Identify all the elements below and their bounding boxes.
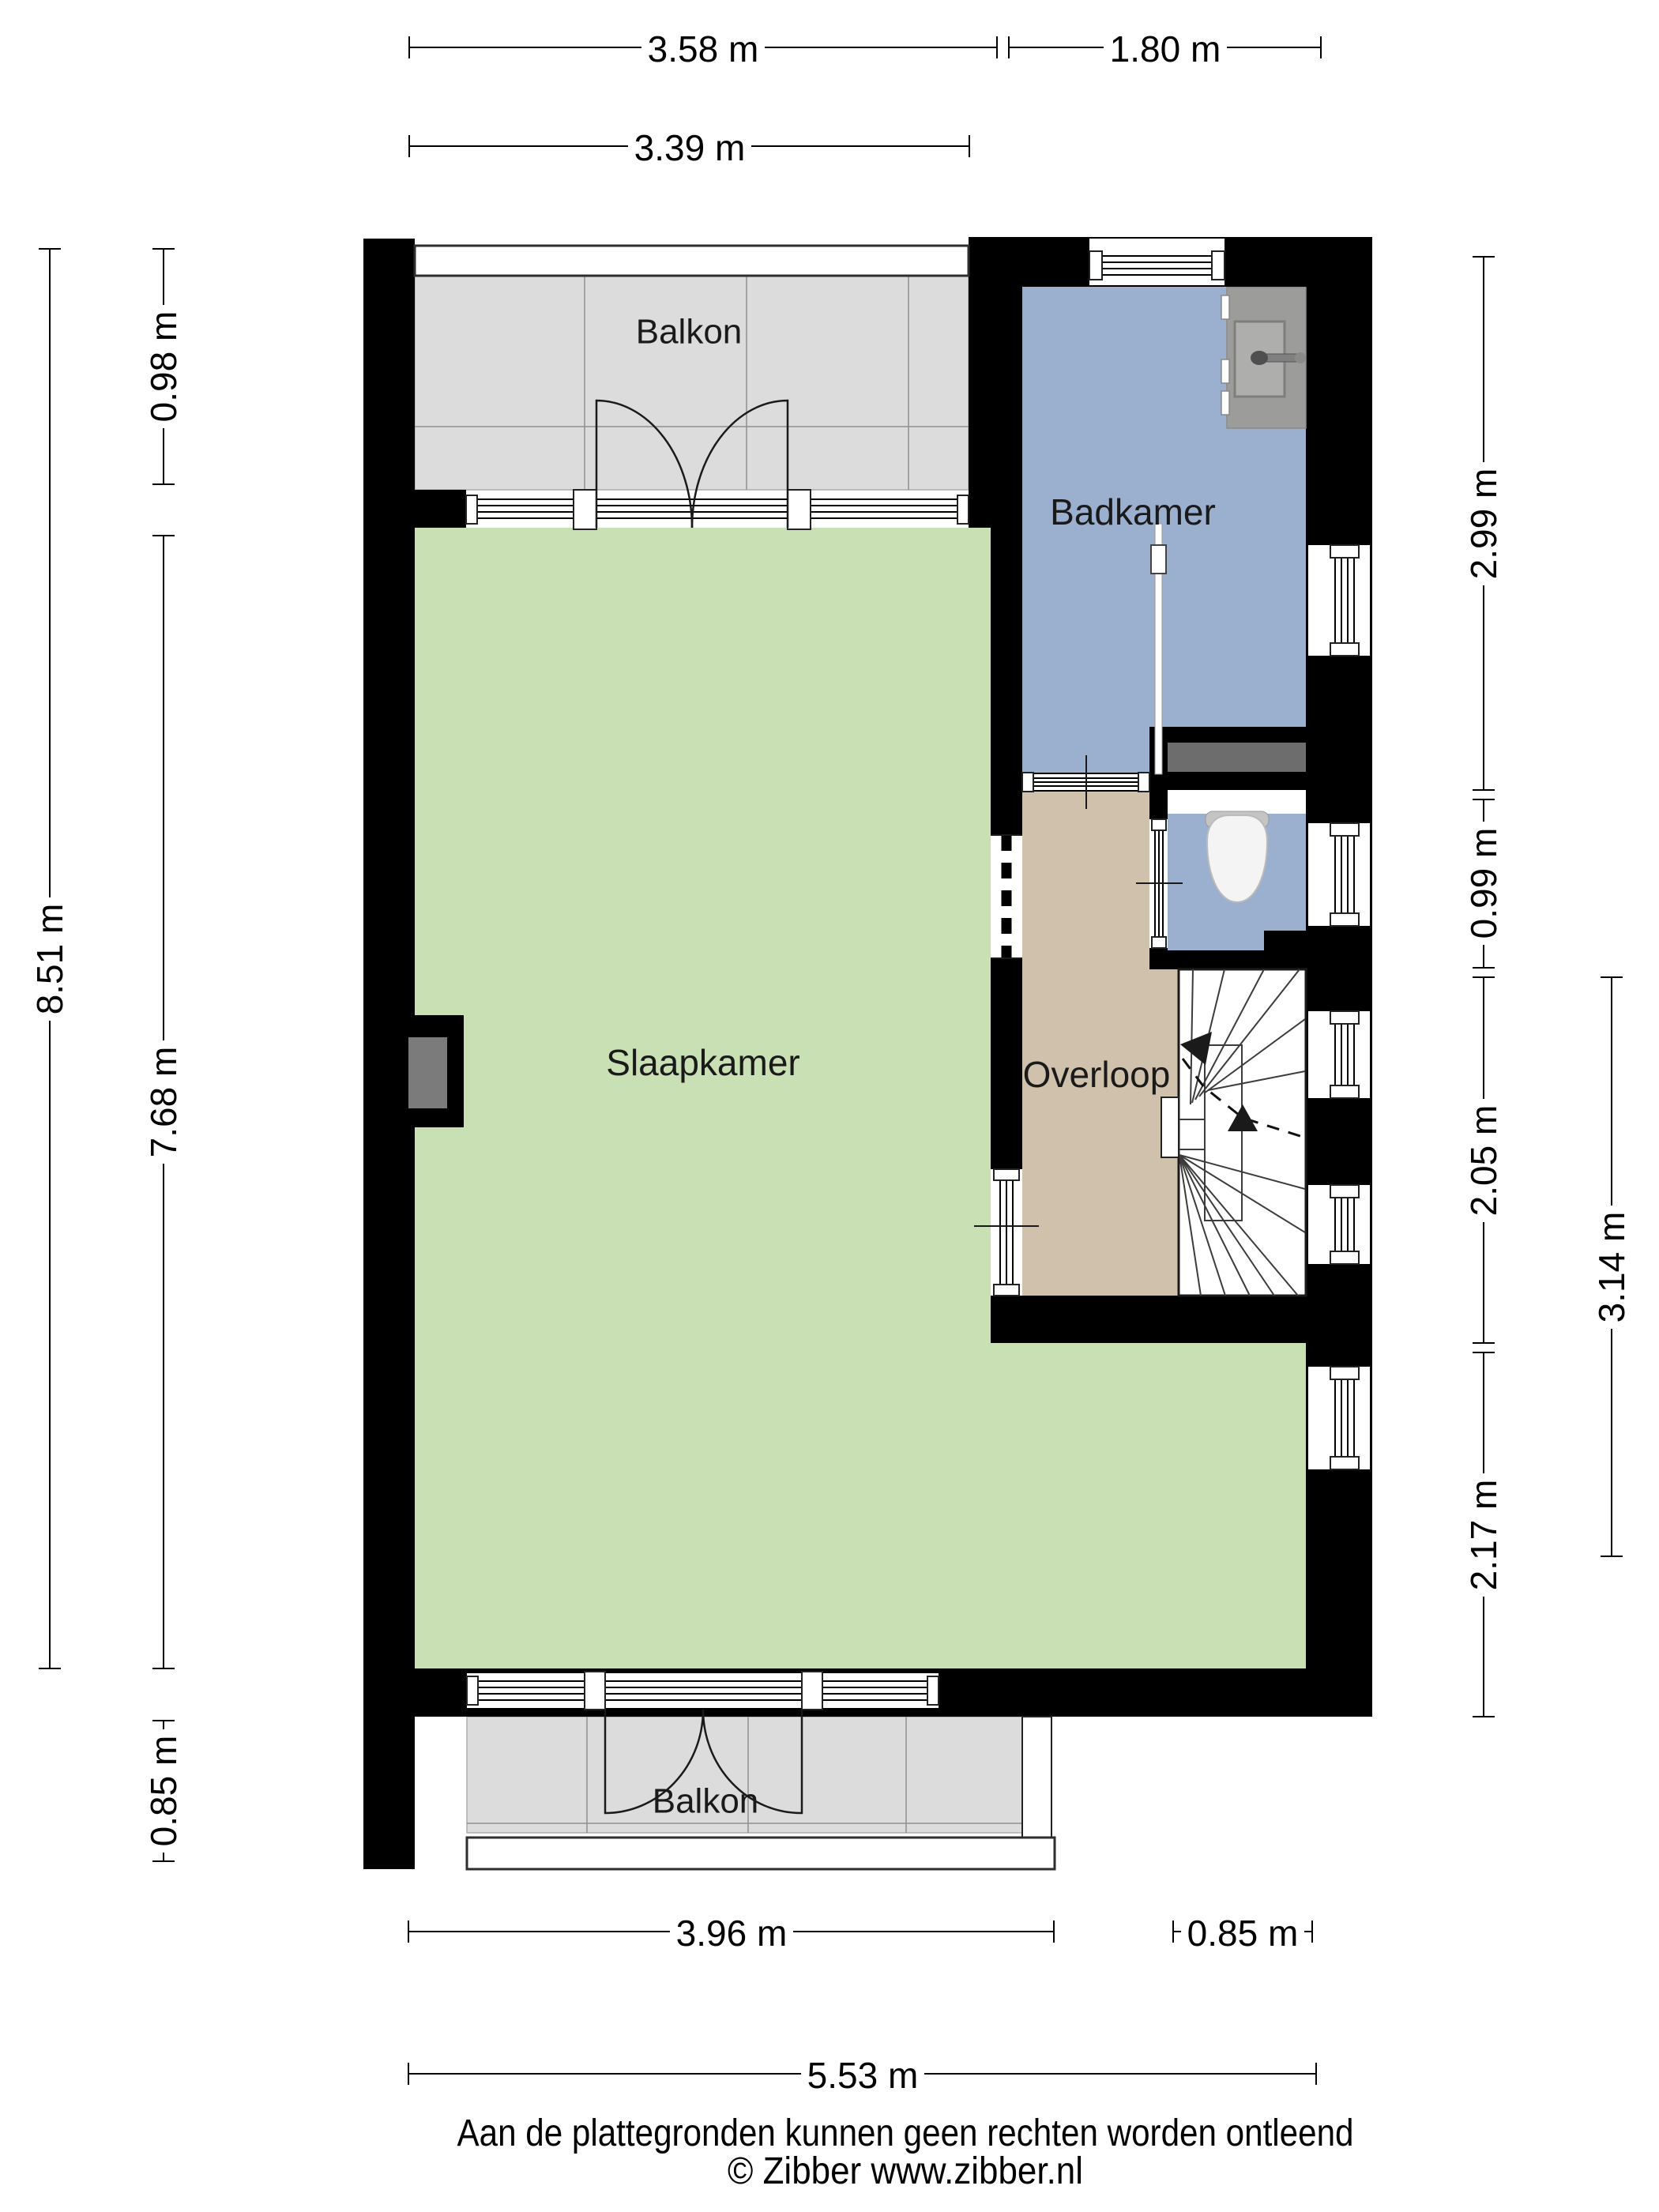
dimension-right-099: 0.99 m bbox=[1463, 799, 1504, 968]
dimension-right-314: 3.14 m bbox=[1591, 977, 1632, 1556]
wall-right bbox=[1306, 237, 1372, 1717]
footer-copyright: © Zibber www.zibber.nl bbox=[728, 2150, 1083, 2192]
balkon-bottom-jamb-column bbox=[1022, 1717, 1051, 1838]
dim-label-0-99: 0.99 m bbox=[1463, 828, 1504, 939]
wall-toilet-bottom bbox=[1149, 950, 1306, 969]
window-right-stairs-lower bbox=[1308, 1185, 1370, 1264]
wall-overloop-bottom bbox=[991, 1296, 1306, 1343]
dim-label-5-53: 5.53 m bbox=[807, 2055, 919, 2096]
balkon-bottom-railing bbox=[467, 1838, 1055, 1869]
toilet-niche bbox=[1168, 790, 1306, 814]
duct-shaft bbox=[408, 1037, 447, 1108]
balkon-top-floor bbox=[415, 276, 969, 490]
balkon-top-sill-window bbox=[466, 490, 969, 529]
window-right-slaapkamer bbox=[1308, 1367, 1370, 1469]
dim-label-0-98: 0.98 m bbox=[143, 311, 184, 423]
vanity-jamb-2 bbox=[1221, 359, 1229, 383]
dimension-right-299: 2.99 m bbox=[1463, 257, 1504, 790]
dimension-right-217: 2.17 m bbox=[1463, 1352, 1504, 1717]
dimension-top-358: 3.58 m bbox=[409, 28, 997, 70]
vanity-jamb-3 bbox=[1221, 391, 1229, 415]
balkon-top-railing bbox=[415, 246, 969, 276]
window-right-toilet bbox=[1308, 823, 1370, 926]
opening-slaapkamer-overloop bbox=[991, 835, 1022, 958]
dim-label-8-51: 8.51 m bbox=[29, 904, 70, 1015]
dim-label-2-05: 2.05 m bbox=[1463, 1105, 1504, 1217]
overloop-label: Overloop bbox=[1023, 1054, 1171, 1095]
stairs bbox=[1161, 969, 1306, 1296]
floorplan-canvas: 3.58 m 1.80 m 3.39 m 8.51 m 0.98 m 7.68 … bbox=[0, 0, 1659, 2212]
dim-label-7-68: 7.68 m bbox=[143, 1047, 184, 1158]
sink-vanity bbox=[1221, 288, 1306, 428]
balkon-bottom-label: Balkon bbox=[653, 1782, 759, 1821]
dim-label-3-96: 3.96 m bbox=[676, 1913, 788, 1954]
dimension-bottom-553: 5.53 m bbox=[408, 2054, 1316, 2096]
vanity-jamb-1 bbox=[1221, 295, 1229, 319]
dim-label-3-39: 3.39 m bbox=[634, 127, 746, 168]
window-right-stairs-upper bbox=[1308, 1011, 1370, 1098]
dimension-top-339: 3.39 m bbox=[409, 126, 969, 168]
dim-label-1-80: 1.80 m bbox=[1110, 28, 1221, 70]
balkon-top-label: Balkon bbox=[636, 313, 743, 352]
stairs-entry-jamb bbox=[1161, 1097, 1179, 1157]
dim-label-3-14: 3.14 m bbox=[1591, 1212, 1632, 1323]
window-right-badkamer bbox=[1308, 545, 1370, 656]
dimension-top-180: 1.80 m bbox=[1009, 28, 1321, 70]
dimension-left-098: 0.98 m bbox=[143, 249, 184, 484]
dimension-bottom-085: 0.85 m bbox=[1173, 1912, 1312, 1954]
dim-label-2-99: 2.99 m bbox=[1463, 468, 1504, 580]
badkamer-label: Badkamer bbox=[1050, 491, 1216, 532]
dim-label-2-17: 2.17 m bbox=[1463, 1480, 1504, 1591]
wall-toilet-notch bbox=[1264, 931, 1306, 950]
footer-disclaimer: Aan de plattegronden kunnen geen rechten… bbox=[457, 2112, 1354, 2154]
dimension-right-205: 2.05 m bbox=[1463, 977, 1504, 1343]
dim-label-0-85-left: 0.85 m bbox=[143, 1736, 184, 1847]
wall-badkamer-toilet-c bbox=[1149, 772, 1306, 790]
cistern-shelf bbox=[1168, 743, 1306, 772]
dimension-left-851: 8.51 m bbox=[29, 249, 70, 1668]
dim-label-0-85-bottom: 0.85 m bbox=[1187, 1913, 1299, 1954]
wall-notch-top-left bbox=[415, 490, 466, 528]
floorplan-page: 3.58 m 1.80 m 3.39 m 8.51 m 0.98 m 7.68 … bbox=[0, 0, 1659, 2212]
dimension-left-768: 7.68 m bbox=[143, 536, 184, 1668]
wall-toilet-side bbox=[1149, 948, 1168, 969]
slaapkamer-label: Slaapkamer bbox=[606, 1042, 799, 1083]
dimension-left-085: 0.85 m bbox=[143, 1721, 184, 1861]
wall-badkamer-toilet-b bbox=[1168, 727, 1306, 743]
window-top-badkamer bbox=[1089, 239, 1224, 285]
balkon-bottom-sill-window bbox=[467, 1672, 939, 1710]
dimension-bottom-396: 3.96 m bbox=[408, 1912, 1054, 1954]
dim-label-3-58: 3.58 m bbox=[648, 28, 759, 70]
